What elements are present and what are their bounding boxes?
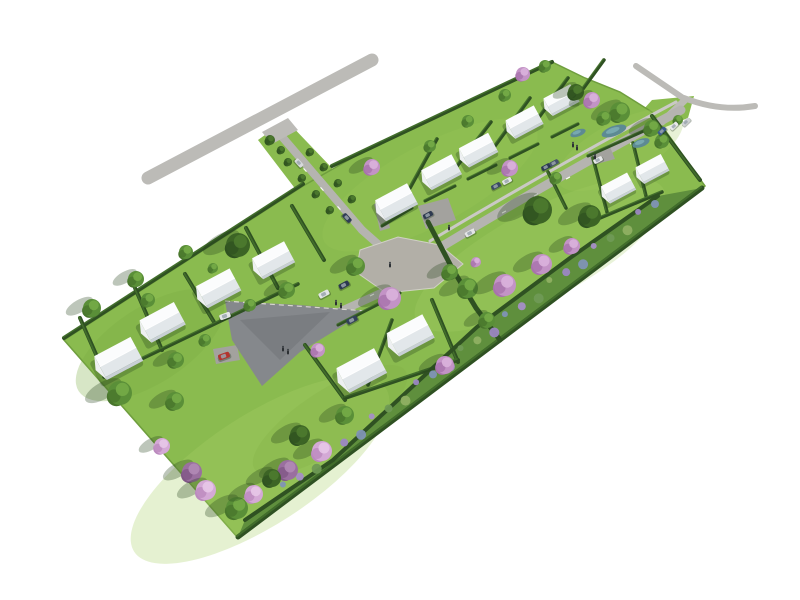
tree-canopy-highlight — [539, 256, 550, 267]
buffer-shrub — [546, 277, 552, 283]
person-head — [282, 346, 284, 348]
person — [282, 346, 284, 352]
tree-canopy-highlight — [386, 289, 398, 301]
tree-canopy-highlight — [189, 464, 200, 475]
person-head — [594, 154, 596, 156]
tree-canopy-highlight — [501, 276, 513, 288]
buffer-shrub — [473, 336, 481, 344]
tree-canopy-highlight — [351, 196, 355, 200]
tree-canopy-highlight — [369, 160, 378, 169]
person-body — [389, 264, 391, 268]
tree-canopy-highlight — [159, 439, 168, 448]
person-head — [448, 225, 450, 227]
buffer-shrub — [458, 345, 464, 351]
tree-canopy-highlight — [287, 159, 291, 163]
person — [572, 142, 574, 148]
tree-canopy-highlight — [280, 147, 284, 151]
tree-canopy-highlight — [269, 470, 279, 480]
person-head — [340, 303, 342, 305]
person-body — [576, 147, 578, 151]
buffer-shrub — [369, 413, 375, 419]
person-head — [389, 262, 391, 264]
person-body — [572, 144, 574, 148]
tree-canopy-highlight — [133, 272, 142, 281]
tree-canopy-highlight — [602, 112, 610, 120]
person-head — [576, 145, 578, 147]
person-head — [572, 142, 574, 144]
tree-canopy-highlight — [211, 264, 217, 270]
tree-canopy-highlight — [533, 198, 548, 213]
tree — [63, 293, 101, 319]
tree-canopy-highlight — [589, 93, 598, 102]
tree-canopy-highlight — [234, 235, 247, 248]
tree-canopy-highlight — [543, 61, 550, 68]
buffer-shrub — [635, 209, 641, 215]
tree-canopy-highlight — [184, 246, 192, 254]
buffer-shrub — [623, 225, 633, 235]
buffer-shrub — [578, 259, 588, 269]
buffer-shrub — [591, 243, 597, 249]
tree-canopy-highlight — [484, 313, 493, 322]
tree-canopy-highlight — [285, 462, 296, 473]
tree-canopy-highlight — [507, 161, 516, 170]
tree-canopy-highlight — [323, 164, 327, 168]
tree-canopy-highlight — [676, 116, 682, 122]
buffer-shrub — [385, 404, 393, 412]
person-body — [287, 351, 289, 355]
tree-canopy-highlight — [116, 383, 129, 396]
tree-canopy-highlight — [203, 335, 210, 342]
tree-canopy-highlight — [284, 283, 293, 292]
person-body — [594, 156, 596, 160]
person-head — [335, 300, 337, 302]
tree-canopy-highlight — [172, 393, 182, 403]
site-plan-canvas — [0, 0, 800, 600]
buffer-shrub — [534, 293, 544, 303]
tree-canopy-highlight — [173, 353, 182, 362]
tree-canopy-highlight — [442, 357, 452, 367]
buffer-shrub — [356, 430, 366, 440]
buffer-shrub — [413, 379, 419, 385]
person — [335, 300, 337, 306]
buffer-shrub — [651, 200, 659, 208]
tree-canopy-highlight — [428, 141, 435, 148]
road — [148, 60, 372, 178]
tree-canopy-highlight — [297, 427, 308, 438]
person-body — [448, 227, 450, 231]
tree-canopy-highlight — [649, 121, 658, 130]
tree-canopy-highlight — [342, 407, 352, 417]
tree-canopy-highlight — [474, 258, 480, 264]
tree-canopy-highlight — [309, 149, 313, 153]
tree-canopy-highlight — [248, 300, 255, 307]
buffer-shrub — [312, 464, 322, 474]
person — [287, 349, 289, 355]
tree-canopy-highlight — [617, 104, 628, 115]
tree-canopy-highlight — [586, 207, 598, 219]
buffer-shrub — [489, 327, 499, 337]
tree-canopy-highlight — [316, 344, 324, 352]
tree-canopy-highlight — [569, 239, 578, 248]
tree-canopy-highlight — [337, 180, 341, 184]
person — [576, 145, 578, 151]
buffer-shrub — [502, 311, 508, 317]
road — [636, 66, 686, 100]
person — [389, 262, 391, 268]
person-body — [335, 302, 337, 306]
tree-canopy-highlight — [301, 175, 305, 179]
tree-canopy-highlight — [203, 482, 214, 493]
person — [594, 154, 596, 160]
person — [340, 303, 342, 309]
buffer-shrub — [401, 396, 411, 406]
person-body — [340, 305, 342, 309]
aerial-site-plan-render — [0, 0, 800, 600]
road — [684, 98, 755, 108]
tree — [110, 266, 144, 289]
tree-canopy-highlight — [521, 68, 529, 76]
person-head — [287, 349, 289, 351]
tree-canopy-highlight — [315, 191, 319, 195]
tree-canopy-highlight — [447, 265, 456, 274]
tree-canopy-highlight — [466, 116, 473, 123]
buffer-shrub — [518, 302, 526, 310]
tree-canopy-highlight — [268, 136, 274, 142]
tree-canopy-highlight — [503, 90, 510, 97]
buffer-shrub — [280, 482, 286, 488]
buffer-shrub — [429, 370, 437, 378]
tree-canopy-highlight — [554, 173, 561, 180]
buffer-shrub — [340, 439, 348, 447]
person — [448, 225, 450, 231]
tree-canopy-highlight — [329, 207, 333, 211]
tree-canopy-highlight — [319, 443, 330, 454]
tree-canopy-highlight — [146, 294, 154, 302]
buffer-shrub — [562, 268, 570, 276]
buffer-shrub — [607, 234, 615, 242]
person-body — [282, 348, 284, 352]
tree-canopy-highlight — [89, 300, 99, 310]
tree-canopy-highlight — [353, 258, 363, 268]
tree-canopy-highlight — [251, 486, 261, 496]
